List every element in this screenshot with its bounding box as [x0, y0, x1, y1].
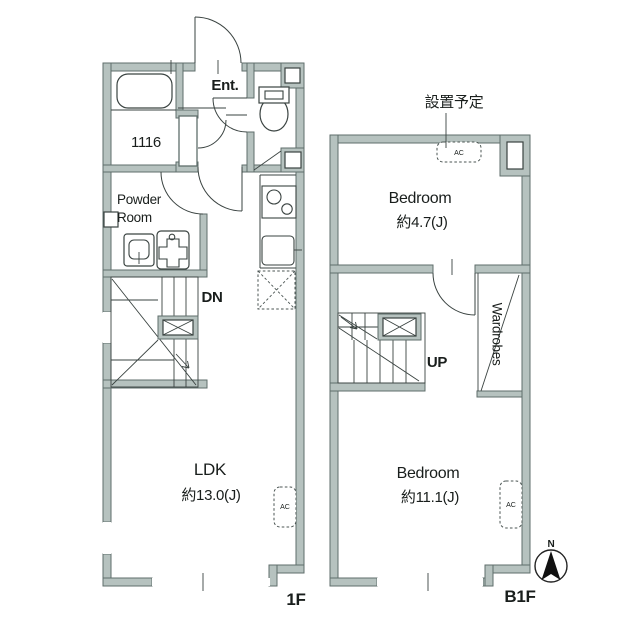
ac-unit-1f: AC [274, 487, 296, 527]
floor-label-b1f: B1F [504, 587, 535, 606]
stairs-up-label: UP [427, 354, 448, 371]
kitchen-sink [262, 236, 294, 265]
bedroom-large-name-label: Bedroom [397, 465, 460, 482]
bathroom-model-label: 1116 [131, 134, 161, 151]
compass-north-label: N [548, 539, 555, 550]
corner-shaft-b1f [507, 142, 523, 169]
floor-1f-plan: AC Ent. 1116 Powder Room DN LDK 約13.0(J)… [103, 17, 306, 609]
ac-label-b1f-top: AC [454, 150, 464, 157]
window-left-upper [103, 312, 111, 343]
window-bottom-1f [152, 573, 270, 591]
washing-machine-pan [157, 231, 189, 269]
wardrobes-label: Wardrobes [490, 303, 505, 366]
entrance-label: Ent. [211, 77, 238, 94]
bedroom-door-b1f [433, 259, 475, 315]
floorplan-canvas: AC Ent. 1116 Powder Room DN LDK 約13.0(J)… [0, 0, 640, 640]
washbasin [124, 234, 154, 266]
duct-space-bottom [285, 152, 301, 168]
stairs-down-label: DN [201, 289, 222, 306]
stair-arrow-1f [176, 354, 189, 368]
ac-label-b1f-side: AC [506, 502, 516, 509]
ldk-size-label: 約13.0(J) [181, 487, 241, 504]
bedroom-large-size-label: 約11.1(J) [401, 489, 459, 506]
duct-space-top [285, 68, 300, 83]
bathroom-sliding-door [179, 116, 197, 166]
compass: N [535, 539, 567, 582]
interior-doors-1f [161, 98, 247, 214]
floor-label-1f: 1F [286, 590, 305, 609]
bathtub [117, 74, 172, 108]
staircase-1f [111, 277, 198, 387]
ac-label-1f: AC [280, 504, 290, 511]
wardrobes: Wardrobes [478, 273, 519, 391]
bedroom-small-size-label: 約4.7(J) [396, 214, 448, 231]
staircase-b1f [338, 313, 425, 383]
powder-room-label-line1: Powder [117, 192, 162, 207]
ldk-name-label: LDK [194, 460, 227, 479]
floor-b1f-plan: Wardrobes AC 設置予定 AC Bedroom 約4.7(J) UP [330, 94, 536, 606]
powder-room-label-line2: Room [117, 210, 152, 225]
ac-unit-b1f-side: AC [500, 481, 522, 528]
meter-box [104, 212, 118, 227]
annotation-planned-install: 設置予定 [425, 94, 484, 111]
refrigerator-space [258, 271, 295, 309]
floorplan-page: AC Ent. 1116 Powder Room DN LDK 約13.0(J)… [0, 0, 640, 640]
bedroom-small-name-label: Bedroom [389, 190, 452, 207]
window-bottom-b1f [377, 573, 483, 591]
window-left-lower [103, 522, 111, 554]
